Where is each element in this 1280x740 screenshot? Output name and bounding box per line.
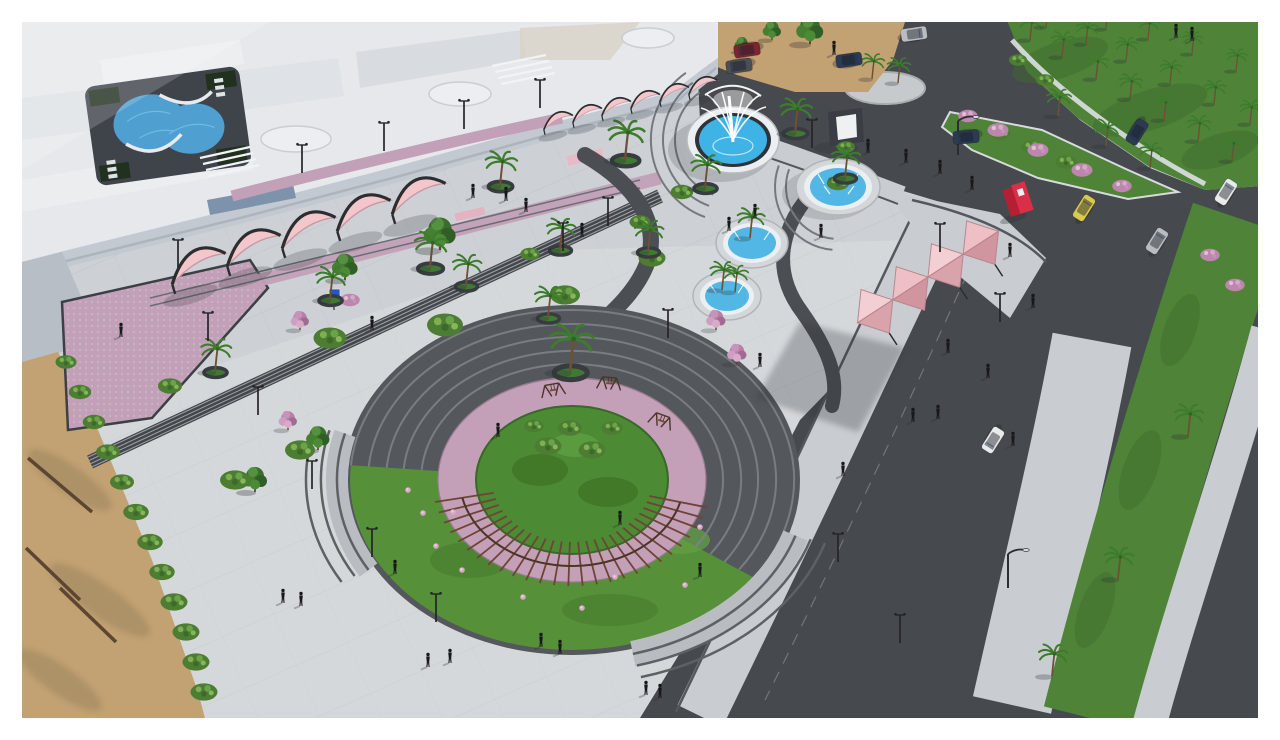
fountain-4: [693, 272, 761, 320]
scene-root: [11, 3, 1268, 730]
render-image: [0, 0, 1280, 740]
